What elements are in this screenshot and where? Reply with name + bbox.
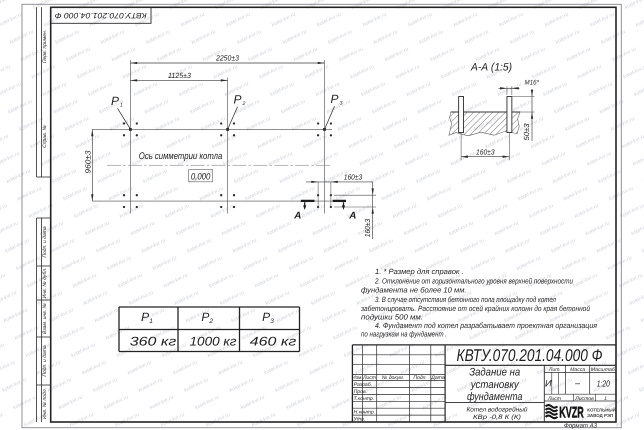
svg-text:Котел водогрейный: Котел водогрейный bbox=[467, 407, 528, 414]
svg-text:Масса: Масса bbox=[570, 367, 585, 373]
svg-text:KVZR: KVZR bbox=[559, 404, 584, 421]
svg-text:ЗАВОД РЭП: ЗАВОД РЭП bbox=[587, 413, 613, 418]
svg-text:Пров.: Пров. bbox=[354, 389, 367, 395]
svg-text:М16*: М16* bbox=[525, 80, 540, 87]
svg-text:Взам. инв. №: Взам. инв. № bbox=[42, 302, 48, 334]
svg-text:Лит.: Лит. bbox=[548, 367, 561, 373]
svg-text:160±3: 160±3 bbox=[363, 218, 372, 237]
svg-text:160±3: 160±3 bbox=[476, 147, 495, 156]
svg-text:КВТУ.070.201.04.000 Ф: КВТУ.070.201.04.000 Ф bbox=[457, 346, 603, 365]
svg-text:1: 1 bbox=[604, 396, 607, 402]
svg-text:–: – bbox=[574, 378, 580, 388]
svg-text:А: А bbox=[348, 211, 356, 222]
svg-text:Масштаб: Масштаб bbox=[591, 367, 616, 373]
svg-text:1:20: 1:20 bbox=[597, 378, 610, 388]
svg-text:А-А (1:5): А-А (1:5) bbox=[470, 62, 512, 74]
svg-text:Лист: Лист bbox=[362, 375, 376, 381]
svg-text:№ докум.: № докум. bbox=[382, 375, 404, 381]
svg-text:2. Отклонение от горизонтальн: 2. Отклонение от горизонтального уровня … bbox=[374, 277, 573, 286]
svg-text:Инв. № подл.: Инв. № подл. bbox=[42, 388, 48, 419]
svg-text:960±3: 960±3 bbox=[84, 150, 93, 174]
svg-text:Изм.: Изм. bbox=[352, 375, 363, 381]
svg-text:КОТЕЛЬНЫЙ: КОТЕЛЬНЫЙ bbox=[587, 407, 616, 412]
svg-text:Подп. и дата: Подп. и дата bbox=[42, 345, 48, 377]
svg-text:50±3: 50±3 bbox=[522, 123, 531, 141]
svg-text:Подп.: Подп. bbox=[413, 375, 427, 381]
svg-text:3. В случае отсутствия бетонн: 3. В случае отсутствия бетонного пола пл… bbox=[375, 295, 557, 304]
svg-text:КВр -0,8 К (К): КВр -0,8 К (К) bbox=[473, 414, 521, 421]
svg-text:Подп. и дата: Подп. и дата bbox=[42, 226, 48, 258]
svg-text:160±3: 160±3 bbox=[344, 173, 363, 182]
svg-text:Н.контр.: Н.контр. bbox=[354, 410, 376, 416]
svg-text:Лист: Лист bbox=[547, 396, 561, 402]
svg-text:Листов: Листов bbox=[574, 396, 594, 402]
svg-text:Ось симметрии котла: Ось симметрии котла bbox=[139, 151, 223, 162]
svg-text:Справ. №: Справ. № bbox=[42, 125, 48, 148]
svg-text:0,000: 0,000 bbox=[191, 171, 211, 181]
svg-text:И: И bbox=[545, 378, 552, 388]
svg-text:1000 кг: 1000 кг bbox=[190, 334, 237, 348]
svg-text:Дата: Дата bbox=[430, 375, 445, 381]
svg-text:Утв.: Утв. bbox=[354, 417, 366, 423]
svg-text:2250±3: 2250±3 bbox=[215, 54, 240, 63]
svg-text:установку: установку bbox=[470, 379, 520, 391]
svg-text:Задание на: Задание на bbox=[469, 366, 520, 378]
svg-text:Формат А3: Формат А3 bbox=[564, 423, 598, 430]
svg-text:по нагрузкам на фундамент .: по нагрузкам на фундамент . bbox=[361, 330, 447, 339]
svg-text:фундамента не более 10 мм.: фундамента не более 10 мм. bbox=[361, 286, 467, 295]
svg-text:Инв. № дубл.: Инв. № дубл. bbox=[42, 268, 48, 299]
svg-text:Перв. примен.: Перв. примен. bbox=[42, 30, 48, 63]
svg-text:А: А bbox=[293, 211, 301, 222]
svg-text:360 кг: 360 кг bbox=[130, 334, 177, 348]
svg-text:1125±3: 1125±3 bbox=[168, 71, 192, 80]
svg-text:фундамента: фундамента bbox=[467, 391, 523, 403]
svg-text:1. * Размер для справок .: 1. * Размер для справок . bbox=[375, 267, 464, 276]
svg-text:Разраб.: Разраб. bbox=[354, 382, 372, 388]
svg-text:КВТУ.070.201.04.000 Ф: КВТУ.070.201.04.000 Ф bbox=[55, 11, 147, 20]
svg-text:Т.контр.: Т.контр. bbox=[354, 396, 375, 402]
svg-text:460 кг: 460 кг bbox=[250, 334, 297, 348]
